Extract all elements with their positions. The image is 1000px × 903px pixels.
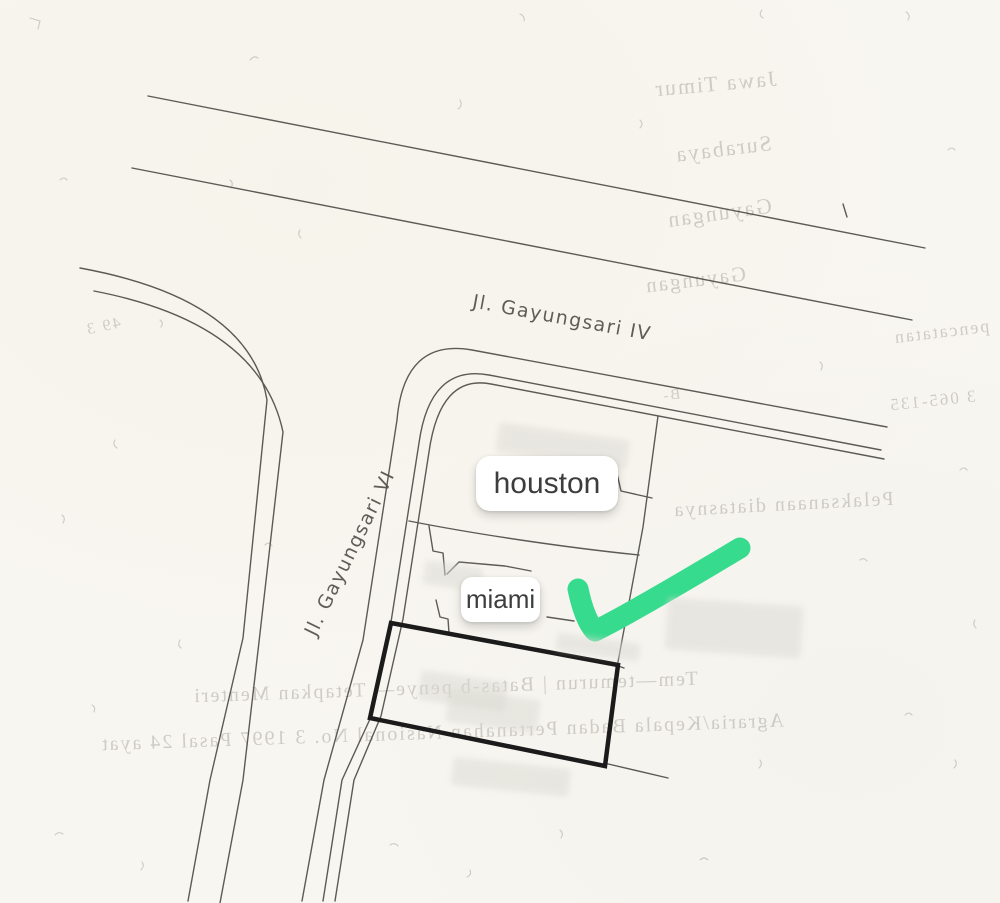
blur-redaction-patch [664, 597, 803, 658]
scanned-sketch-page: Jawa TimurSurabayaGayunganGayunganpencat… [0, 0, 1000, 903]
sw-block-inner-line [94, 291, 283, 903]
plot-step-right-of-houston [615, 465, 652, 498]
marker-chip-miami[interactable]: miami [461, 577, 540, 622]
plot-divider-houston-miami [409, 521, 639, 555]
plot-line-below-rect [604, 763, 668, 778]
plot-step-b [436, 600, 449, 633]
sw-block-outer-line [80, 268, 267, 901]
marker-chip-houston[interactable]: houston [476, 456, 618, 511]
road-tick-mark [843, 204, 847, 217]
road-iv-north-inner-line [132, 168, 912, 320]
marker-chip-label: miami [466, 584, 535, 615]
plot-line-right-of-miami [547, 617, 574, 621]
marker-chip-label: houston [494, 467, 601, 501]
road-iv-north-outer-line [148, 96, 925, 248]
